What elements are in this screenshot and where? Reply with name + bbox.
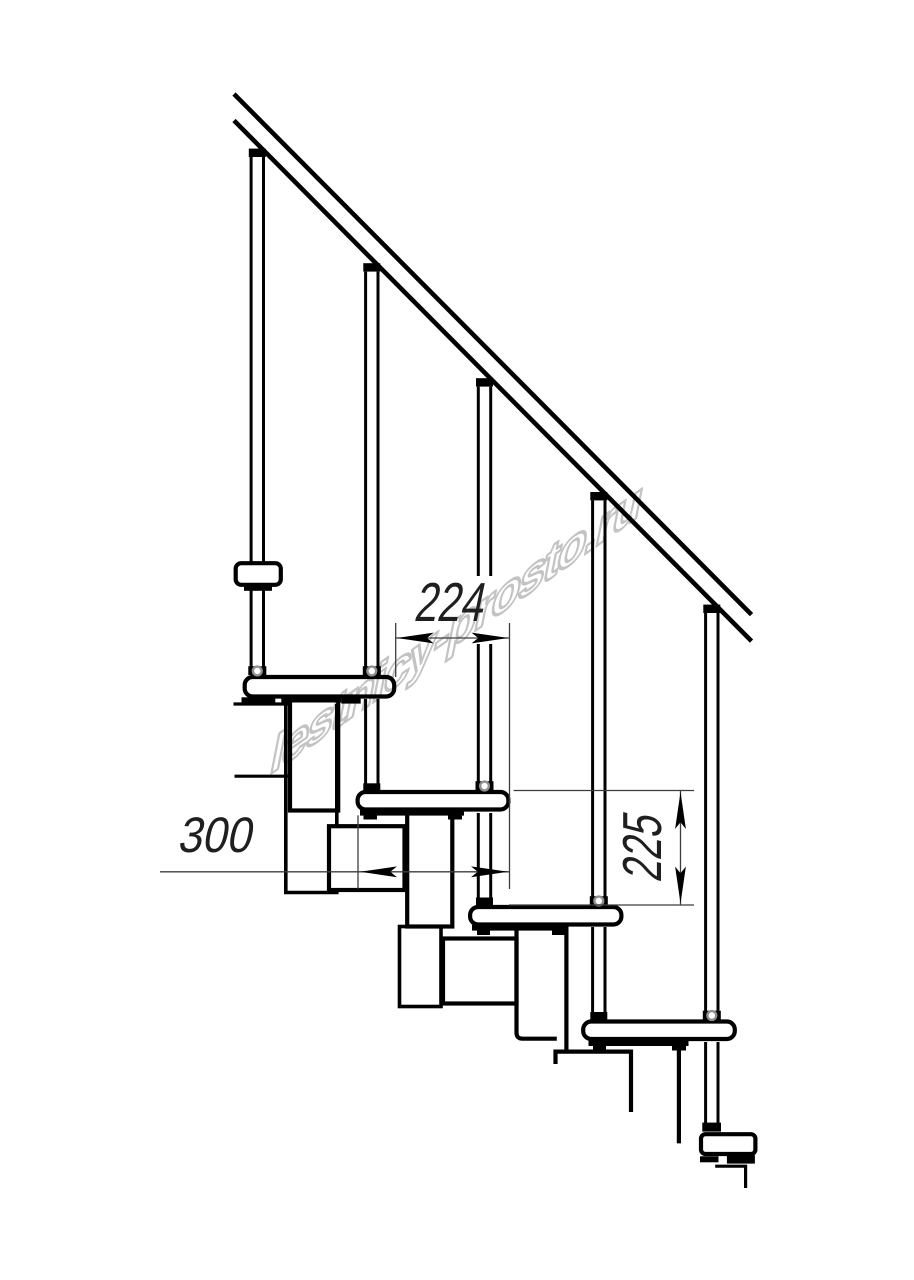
svg-text:300: 300	[174, 808, 259, 864]
svg-text:225: 225	[612, 807, 673, 886]
svg-text:224: 224	[410, 572, 492, 633]
